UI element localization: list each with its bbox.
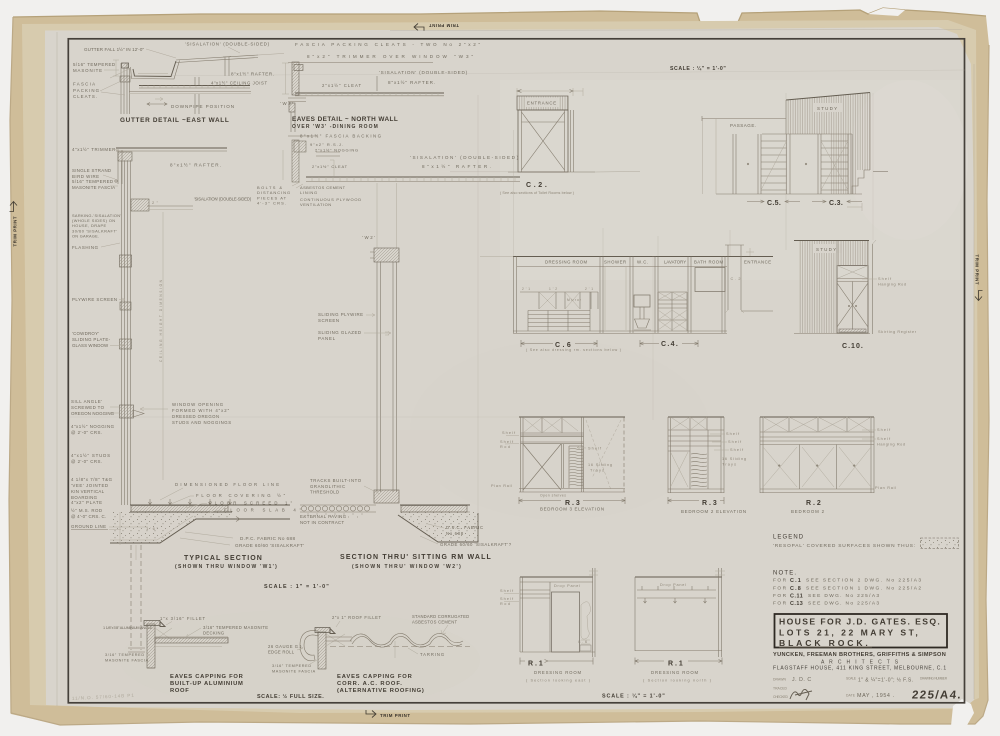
svg-text:16 Sliding: 16 Sliding [722, 457, 746, 461]
svg-text:SECTION THRU' SITTING RM WALL: SECTION THRU' SITTING RM WALL [340, 554, 492, 561]
svg-text:SCALE: ½ FULL SIZE.: SCALE: ½ FULL SIZE. [257, 693, 325, 700]
svg-text:SHOWER: SHOWER [604, 260, 627, 265]
svg-text:2"x1½" NOGGING: 2"x1½" NOGGING [315, 148, 359, 153]
svg-text:1'6": 1'6" [146, 526, 159, 531]
svg-text:Shelf: Shelf [878, 277, 892, 281]
svg-text:1'2: 1'2 [549, 287, 557, 291]
svg-text:DRESSED OREGON: DRESSED OREGON [172, 414, 220, 419]
svg-text:No 688: No 688 [446, 531, 464, 536]
svg-text:'W2': 'W2' [362, 235, 376, 240]
svg-text:DATE: DATE [846, 694, 856, 698]
svg-text:DRESSING ROOM: DRESSING ROOM [651, 670, 699, 675]
svg-text:Plan Rail: Plan Rail [875, 486, 896, 490]
svg-text:C.3.: C.3. [829, 200, 844, 207]
svg-text:SCALE : ¼" = 1'-0": SCALE : ¼" = 1'-0" [602, 693, 666, 700]
svg-text:BEDROOM 3 ELEVATION: BEDROOM 3 ELEVATION [540, 507, 605, 512]
svg-text:ENTRANCE: ENTRANCE [744, 260, 772, 265]
svg-text:( Section looking east ): ( Section looking east ) [526, 679, 591, 683]
svg-text:C.8: C.8 [790, 586, 802, 592]
svg-text:LAVATORY: LAVATORY [664, 260, 687, 265]
svg-text:DRESSING ROOM: DRESSING ROOM [534, 670, 582, 675]
svg-text:PANEL: PANEL [318, 336, 336, 341]
svg-text:Shelf: Shelf [728, 440, 742, 444]
svg-text:4"x1½" NOGGING: 4"x1½" NOGGING [71, 424, 115, 429]
svg-text:Plan Rail: Plan Rail [491, 484, 512, 488]
svg-text:4"x2" PLATE: 4"x2" PLATE [71, 500, 103, 505]
svg-text:Shelf: Shelf [588, 447, 602, 451]
svg-text:W.C.: W.C. [637, 260, 649, 265]
svg-text:BEDROOM 2 ELEVATION: BEDROOM 2 ELEVATION [681, 509, 747, 514]
svg-text:R.2: R.2 [806, 500, 822, 507]
svg-text:Shelf: Shelf [730, 448, 744, 452]
svg-text:ROOF: ROOF [170, 688, 190, 694]
svg-text:FORMED WITH 4"x2": FORMED WITH 4"x2" [172, 408, 230, 413]
svg-text:SCREEN: SCREEN [318, 318, 340, 323]
svg-text:8"x1½" RAFTER.: 8"x1½" RAFTER. [388, 79, 436, 85]
svg-text:3/16" TEMPERED: 3/16" TEMPERED [105, 653, 145, 657]
svg-text:C.2: C.2 [731, 277, 741, 281]
svg-text:FASCIA: FASCIA [73, 82, 96, 87]
svg-text:(SHOWN THRU WINDOW 'W1'): (SHOWN THRU WINDOW 'W1') [175, 564, 278, 570]
svg-text:1"x 3/16" FILLET: 1"x 3/16" FILLET [160, 616, 206, 621]
svg-text:Shelf: Shelf [500, 589, 514, 593]
svg-text:SINGLE STRAND: SINGLE STRAND [72, 168, 112, 173]
svg-text:TRACKS BUILT-INTO: TRACKS BUILT-INTO [310, 478, 362, 483]
svg-text:1 1/8"x7/8" ALUMINIUM ANGLE: 1 1/8"x7/8" ALUMINIUM ANGLE [103, 626, 153, 630]
svg-text:DRAWN: DRAWN [773, 678, 787, 682]
svg-text:DIMENSIONED FLOOR LINE: DIMENSIONED FLOOR LINE [175, 482, 280, 487]
svg-text:FOR: FOR [773, 586, 787, 592]
svg-text:BATH ROOM: BATH ROOM [694, 260, 724, 265]
svg-text:Rod: Rod [500, 602, 510, 606]
svg-text:Drop Panel: Drop Panel [660, 583, 686, 587]
svg-text:C.13: C.13 [790, 601, 804, 607]
svg-text:FLOOR SCREED 1": FLOOR SCREED 1" [209, 501, 293, 506]
svg-text:8"x1½" FASCIA BACKING: 8"x1½" FASCIA BACKING [300, 134, 382, 139]
svg-text:C.10.: C.10. [842, 343, 864, 350]
svg-text:CLEATS.: CLEATS. [73, 94, 98, 99]
svg-text:Shelf: Shelf [726, 432, 740, 436]
svg-text:SEE SECTION 1 DWG. No 225/A2: SEE SECTION 1 DWG. No 225/A2 [806, 586, 922, 592]
svg-text:KIN VERTICAL: KIN VERTICAL [71, 489, 105, 494]
svg-text:TYPICAL SECTION: TYPICAL SECTION [184, 555, 263, 562]
svg-text:NOT IN CONTRACT: NOT IN CONTRACT [300, 520, 345, 525]
svg-text:ENTRANCE: ENTRANCE [527, 101, 557, 106]
svg-text:EAVES DETAIL ~ NORTH WALL: EAVES DETAIL ~ NORTH WALL [292, 116, 399, 123]
svg-text:FLOOR COVERING ½": FLOOR COVERING ½" [196, 493, 286, 498]
svg-text:TARRING: TARRING [420, 652, 445, 657]
svg-text:NOTE.: NOTE. [773, 571, 797, 577]
svg-text:R.1: R.1 [668, 661, 684, 668]
svg-text:SCALE: SCALE [846, 677, 857, 681]
svg-text:EAVES CAPPING FOR: EAVES CAPPING FOR [337, 674, 413, 680]
svg-text:C.11: C.11 [790, 594, 804, 600]
svg-text:Rod: Rod [500, 445, 510, 449]
svg-text:GLASS WINDOW: GLASS WINDOW [72, 343, 109, 348]
svg-text:ASBESTOS CEMENT: ASBESTOS CEMENT [412, 620, 458, 625]
svg-text:'W3': 'W3' [280, 101, 294, 106]
svg-text:HOUSE FOR J.D. GATES. ESQ.: HOUSE FOR J.D. GATES. ESQ. [779, 617, 941, 627]
svg-text:Trays: Trays [722, 463, 736, 467]
svg-text:5/16" TEMPERED: 5/16" TEMPERED [72, 179, 114, 184]
svg-text:'SISALATION' (DOUBLE-SIDED): 'SISALATION' (DOUBLE-SIDED) [410, 155, 519, 160]
svg-text:BUILT-UP ALUMINIUM: BUILT-UP ALUMINIUM [170, 681, 244, 687]
svg-text:SEE DWG. No 225/A3: SEE DWG. No 225/A3 [808, 593, 880, 599]
svg-text:'RESOPAL' COVERED SURFACES SHO: 'RESOPAL' COVERED SURFACES SHOWN THUS: [773, 543, 916, 549]
svg-text:225/A4.: 225/A4. [911, 690, 962, 702]
svg-text:9"x2" R.S.J.: 9"x2" R.S.J. [310, 142, 344, 147]
svg-text:TRIM PRINT: TRIM PRINT [975, 255, 980, 286]
svg-text:@ 4'-0" CRS. C.: @ 4'-0" CRS. C. [71, 514, 107, 519]
svg-text:8"x1½" RAFTER.: 8"x1½" RAFTER. [170, 162, 222, 168]
svg-text:2"x1½" CLEAT: 2"x1½" CLEAT [322, 83, 362, 88]
svg-text:Shelf: Shelf [502, 431, 516, 435]
svg-text:C.1: C.1 [790, 578, 802, 584]
svg-text:2'1: 2'1 [585, 287, 593, 291]
svg-text:(SHOWN THRU' WINDOW 'W2'): (SHOWN THRU' WINDOW 'W2') [352, 564, 462, 570]
svg-text:R.1: R.1 [528, 661, 544, 668]
svg-text:Trays: Trays [590, 469, 604, 473]
svg-text:GRANOLITHIC: GRANOLITHIC [310, 484, 346, 489]
svg-text:SLIDING GLAZED: SLIDING GLAZED [318, 330, 362, 335]
svg-text:OVER 'W3' -DINING ROOM: OVER 'W3' -DINING ROOM [292, 124, 379, 130]
svg-text:'SISALATION' (DOUBLE-SIDED): 'SISALATION' (DOUBLE-SIDED) [194, 197, 252, 202]
svg-text:ON GARAGE.: ON GARAGE. [72, 233, 100, 238]
svg-text:SCALE : ¼" = 1'-0": SCALE : ¼" = 1'-0" [670, 65, 727, 72]
svg-text:SLIDING PLYWIRE: SLIDING PLYWIRE [318, 312, 364, 317]
svg-text:MASONITE FASCIA: MASONITE FASCIA [105, 658, 149, 662]
svg-text:8"x2" TRIMMER OVER WINDOW "W3": 8"x2" TRIMMER OVER WINDOW "W3" [307, 54, 474, 59]
svg-text:Shelf: Shelf [877, 428, 891, 432]
svg-text:1" & ¼"=1'-0"; ½ F.S.: 1" & ¼"=1'-0"; ½ F.S. [858, 677, 914, 684]
svg-text:OREGON NOGGING: OREGON NOGGING [71, 411, 115, 416]
svg-text:3/16" TEMPERED MASONITE: 3/16" TEMPERED MASONITE [203, 625, 269, 630]
svg-text:SEE DWG. No 225/A3: SEE DWG. No 225/A3 [808, 601, 880, 607]
svg-text:PASSAGE.: PASSAGE. [730, 123, 757, 128]
svg-text:4'-3" CRS.: 4'-3" CRS. [257, 201, 287, 206]
svg-text:BEDROOM 2: BEDROOM 2 [791, 509, 825, 514]
svg-text:'COWDROY': 'COWDROY' [72, 331, 100, 336]
svg-text:FLAGSTAFF HOUSE, 411 KING STRE: FLAGSTAFF HOUSE, 411 KING STREET, MELBOU… [773, 666, 947, 672]
svg-text:MASONITE FASCIA: MASONITE FASCIA [72, 185, 116, 190]
svg-text:@ 2'-0" CRS.: @ 2'-0" CRS. [71, 459, 103, 464]
svg-text:4"x1½" CEILING JOIST: 4"x1½" CEILING JOIST [211, 81, 268, 86]
svg-text:MASONITE FASCIA: MASONITE FASCIA [272, 669, 316, 673]
svg-text:STANDARD CORRUGATED: STANDARD CORRUGATED [412, 614, 470, 619]
svg-text:FLASHING: FLASHING [72, 245, 99, 250]
svg-text:FLOOR SLAB 4": FLOOR SLAB 4" [224, 508, 302, 513]
svg-text:3/16" TEMPERED: 3/16" TEMPERED [272, 664, 312, 668]
svg-text:SLIDING PLATE-: SLIDING PLATE- [72, 337, 111, 342]
svg-text:Hanging Rod: Hanging Rod [877, 443, 905, 447]
svg-text:R.3: R.3 [702, 500, 718, 507]
svg-text:'SISALATION' (DOUBLE-SIDED): 'SISALATION' (DOUBLE-SIDED) [185, 42, 270, 47]
svg-text:GUTTER DETAIL ~EAST WALL: GUTTER DETAIL ~EAST WALL [120, 117, 230, 124]
svg-text:EDGE ROLL: EDGE ROLL [268, 650, 295, 655]
svg-text:Shelf: Shelf [877, 437, 891, 441]
svg-text:GUTTER FALL 1½" IN 12'-0": GUTTER FALL 1½" IN 12'-0" [84, 46, 145, 52]
svg-text:C.4.: C.4. [661, 341, 679, 348]
svg-text:26 GAUGE G.I.: 26 GAUGE G.I. [268, 644, 304, 649]
svg-text:D.P.C. FABRIC: D.P.C. FABRIC [446, 525, 484, 530]
svg-text:C.5.: C.5. [767, 200, 782, 207]
svg-text:D.P.C. FABRIC No 688: D.P.C. FABRIC No 688 [240, 536, 296, 541]
svg-text:C.6: C.6 [578, 640, 587, 644]
svg-text:CHECKED: CHECKED [773, 695, 789, 699]
svg-text:TRIM PRINT: TRIM PRINT [13, 216, 18, 247]
svg-text:8"x1½" RAFTER.: 8"x1½" RAFTER. [422, 163, 492, 169]
svg-text:Drop Panel: Drop Panel [554, 584, 580, 588]
svg-text:EXTERNAL PAVING: EXTERNAL PAVING [300, 514, 347, 519]
svg-text:GRADE 60/60 'SISALKRAFT'?: GRADE 60/60 'SISALKRAFT'? [440, 542, 512, 547]
svg-text:Shelf: Shelf [500, 597, 514, 601]
svg-text:16 Sliding: 16 Sliding [588, 463, 612, 467]
svg-text:4"x1½" STUDS: 4"x1½" STUDS [71, 453, 111, 458]
svg-text:LEGEND: LEGEND [773, 535, 804, 541]
svg-text:2"x 1" ROOF FILLET: 2"x 1" ROOF FILLET [332, 615, 382, 620]
svg-text:EAVES CAPPING FOR: EAVES CAPPING FOR [170, 674, 244, 680]
svg-text:( See also dressing rm. sectio: ( See also dressing rm. sections below ) [526, 348, 621, 352]
svg-text:DRAWING NUMBER: DRAWING NUMBER [920, 677, 948, 681]
svg-text:(ALTERNATIVE ROOFING): (ALTERNATIVE ROOFING) [337, 688, 425, 694]
svg-text:LINING: LINING [300, 190, 318, 195]
svg-text:STUDY: STUDY [816, 247, 837, 252]
svg-text:LOTS 21, 22 MARY ST,: LOTS 21, 22 MARY ST, [779, 628, 919, 638]
svg-text:DRESSING ROOM: DRESSING ROOM [545, 260, 588, 265]
svg-text:Hanging Rod: Hanging Rod [878, 283, 906, 287]
svg-text:'VEE' JOINTED: 'VEE' JOINTED [71, 483, 109, 488]
svg-text:PACKING: PACKING [73, 88, 100, 93]
svg-text:DECKING: DECKING [203, 631, 225, 636]
svg-text:GROUND LINE: GROUND LINE [71, 524, 107, 529]
svg-text:BLACK ROCK.: BLACK ROCK. [779, 638, 869, 648]
svg-text:Shelf: Shelf [500, 440, 514, 444]
svg-text:MASONITE: MASONITE [73, 68, 103, 73]
svg-text:THRESHOLD: THRESHOLD [310, 490, 340, 495]
svg-text:VENTILATION: VENTILATION [300, 202, 332, 207]
svg-text:2"x1½" CLEAT: 2"x1½" CLEAT [312, 164, 348, 169]
svg-text:STUDS AND NOGGINGS: STUDS AND NOGGINGS [172, 420, 232, 425]
svg-text:½" M.S. ROD: ½" M.S. ROD [71, 508, 103, 513]
svg-text:MAY , 1954 .: MAY , 1954 . [857, 693, 895, 699]
svg-text:FOR: FOR [773, 593, 787, 599]
svg-text:Mirror: Mirror [567, 298, 582, 302]
svg-text:SILL ANGLE': SILL ANGLE' [71, 399, 103, 404]
svg-text:FOR: FOR [773, 578, 787, 584]
svg-text:STUDY: STUDY [817, 106, 838, 111]
svg-text:5/16" TEMPERED: 5/16" TEMPERED [73, 62, 116, 67]
svg-text:SEE SECTION 2 DWG. No 225/A3: SEE SECTION 2 DWG. No 225/A3 [806, 578, 922, 584]
svg-text:WINDOW OPENING: WINDOW OPENING [172, 402, 224, 407]
svg-text:YUNCKEN, FREEMAN BROTHERS, GRI: YUNCKEN, FREEMAN BROTHERS, GRIFFITHS & S… [773, 652, 947, 658]
svg-text:TRACED: TRACED [773, 687, 788, 691]
svg-text:PLYWIRE SCREEN: PLYWIRE SCREEN [72, 297, 118, 302]
svg-text:8"x1½" RAFTER.: 8"x1½" RAFTER. [231, 71, 275, 77]
svg-text:SCREWED TO: SCREWED TO [71, 405, 105, 410]
svg-text:GRADE 60/60 'SISALKRAFT': GRADE 60/60 'SISALKRAFT' [235, 543, 305, 548]
svg-text:Open shelves: Open shelves [540, 494, 566, 498]
svg-text:SCALE : 1" = 1'-0": SCALE : 1" = 1'-0" [264, 584, 330, 590]
svg-text:4"x1½" TRIMMER.: 4"x1½" TRIMMER. [72, 147, 118, 152]
svg-text:TRIM PRINT: TRIM PRINT [380, 713, 411, 718]
svg-text:2'1: 2'1 [522, 287, 530, 291]
svg-text:FOR: FOR [773, 601, 787, 607]
svg-text:J. D. C: J. D. C [792, 677, 812, 683]
svg-text:CORR. A.C. ROOF.: CORR. A.C. ROOF. [337, 681, 403, 687]
svg-text:4 1/8"x 7/8" T&G: 4 1/8"x 7/8" T&G [71, 477, 113, 482]
svg-text:TRIM PRINT: TRIM PRINT [428, 23, 459, 28]
svg-text:( Section looking north ): ( Section looking north ) [643, 679, 712, 683]
svg-text:Skirting Register: Skirting Register [878, 330, 917, 334]
svg-text:@ 2'-0" CRS.: @ 2'-0" CRS. [71, 430, 103, 435]
svg-text:DOWNPIPE POSITION: DOWNPIPE POSITION [171, 104, 235, 109]
svg-text:( See also sections of Toilet: ( See also sections of Toilet Rooms belo… [500, 191, 574, 195]
